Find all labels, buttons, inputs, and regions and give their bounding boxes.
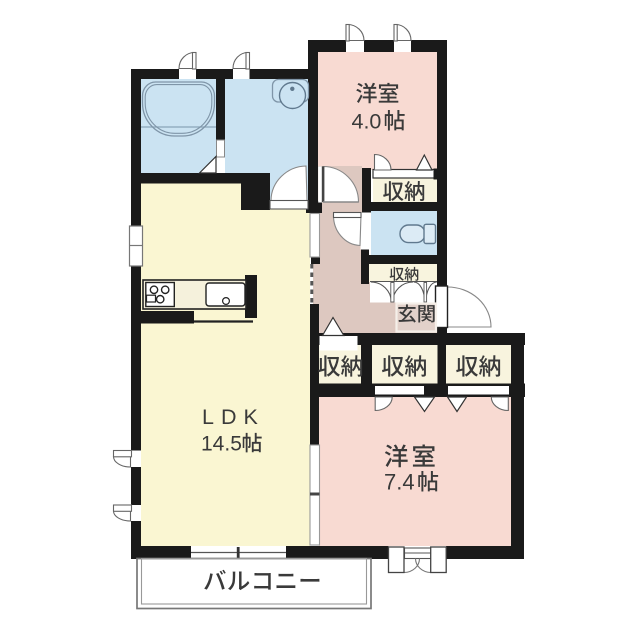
svg-text:4.0: 4.0 xyxy=(352,110,382,134)
svg-text:14.5: 14.5 xyxy=(201,433,242,456)
svg-text:7.4: 7.4 xyxy=(384,470,415,495)
svg-text:LDK: LDK xyxy=(202,405,265,429)
